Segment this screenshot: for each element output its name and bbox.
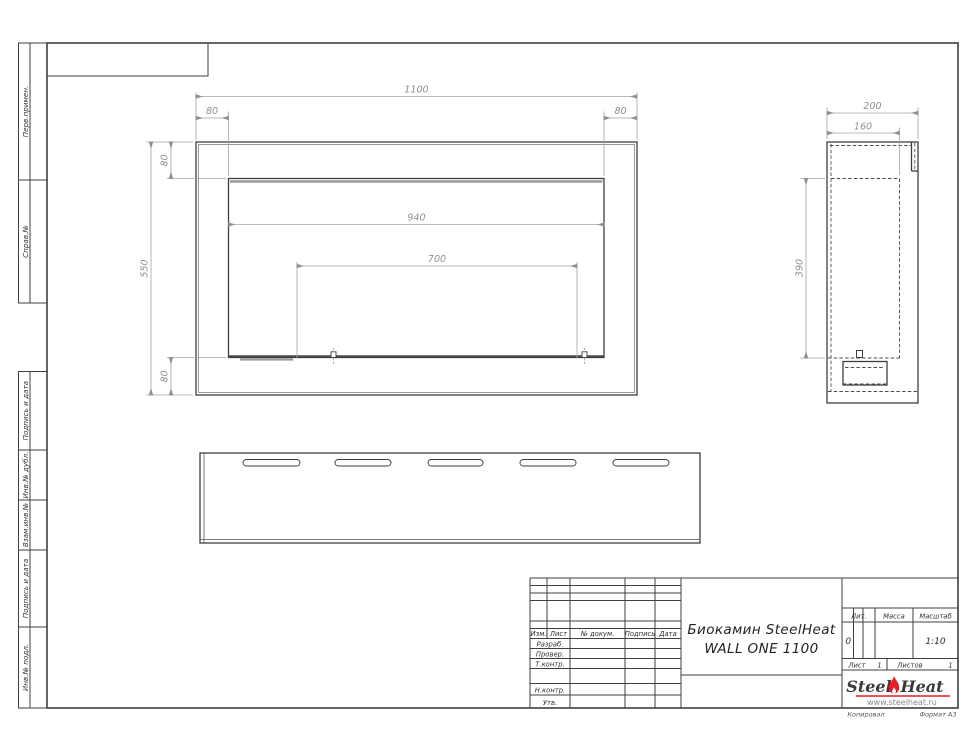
col-izm: Изм. (531, 630, 547, 638)
scale-value: 1:10 (925, 637, 945, 647)
side-notch (857, 351, 863, 358)
svg-text:550: 550 (140, 259, 151, 277)
sheet-label: Лист (847, 662, 866, 670)
dim-front-height: 550 (140, 142, 194, 395)
logo-url: www.steelheat.ru (867, 698, 937, 707)
dim-side-inner-height: 390 (795, 179, 826, 359)
sheets-value: 1 (948, 662, 952, 670)
sheets-label: Листов (896, 662, 922, 670)
dim-front-offset-bottom: 80 (160, 358, 227, 396)
svg-text:700: 700 (428, 254, 446, 265)
row-utv: Утв. (543, 699, 557, 707)
frame-border (47, 43, 958, 708)
left-margin-column: Перв.примен. Справ.№ Подпись и дата Инв.… (19, 43, 48, 708)
side-outer-body (827, 142, 918, 403)
top-left-stamp-box (47, 43, 208, 76)
front-opening (229, 179, 605, 358)
margin-label-perv-primen: Перв.примен. (21, 86, 30, 138)
footer-copied: Копировал (847, 711, 884, 719)
footer-format: Формат А3 (919, 711, 956, 719)
dim-front-mount-spacing: 700 (297, 254, 577, 358)
svg-text:200: 200 (863, 101, 881, 112)
dim-front-offset-top: 80 (147, 142, 227, 179)
dim-side-inner-depth: 160 (827, 122, 900, 176)
svg-text:160: 160 (854, 122, 872, 133)
svg-text:390: 390 (795, 259, 806, 277)
mount-tab-right (582, 348, 587, 364)
row-nkontr: Н.контр. (535, 687, 565, 695)
svg-text:940: 940 (407, 213, 425, 224)
svg-text:80: 80 (206, 106, 218, 117)
side-view: 200 160 390 (795, 101, 919, 403)
sheet-frame (47, 43, 958, 708)
row-tkontr: Т.контр. (535, 660, 564, 668)
mount-tab-left (331, 348, 336, 364)
row-prover: Провер. (536, 650, 564, 658)
side-bracket (912, 142, 919, 171)
margin-label-podpis-data-1: Подпись и дата (21, 381, 30, 441)
title-block: Изм. Лист № докум. Подпись Дата Разраб. … (530, 578, 958, 708)
top-view (200, 453, 700, 543)
svg-text:80: 80 (160, 370, 171, 382)
product-name-line1: Биокамин SteelHeat (687, 622, 836, 638)
drawing-sheet: Перв.примен. Справ.№ Подпись и дата Инв.… (0, 0, 970, 750)
svg-text:1100: 1100 (404, 85, 428, 96)
steelheat-logo: Steel Heat www.steelheat.ru (846, 676, 950, 707)
mass-label: Масса (883, 613, 905, 621)
product-name-line2: WALL ONE 1100 (704, 641, 818, 657)
vent-slot (335, 460, 391, 467)
col-list: Лист (549, 630, 568, 638)
lit-value: 0 (845, 637, 851, 647)
front-view: 1100 80 80 80 550 (140, 85, 638, 396)
lit-label: Лит. (850, 613, 867, 621)
svg-text:80: 80 (160, 154, 171, 166)
row-razrab: Разраб. (537, 640, 564, 648)
vent-slot (428, 460, 483, 467)
scale-label: Масштаб (919, 613, 951, 621)
dim-front-opening-width: 940 (229, 213, 605, 225)
dim-front-offset-left: 80 (196, 106, 229, 176)
sheet-value: 1 (877, 662, 881, 670)
vent-slot (613, 460, 669, 467)
vent-slot (243, 460, 300, 467)
sheet-footer: Копировал Формат А3 (847, 711, 956, 719)
top-view-body (200, 453, 700, 543)
margin-label-sprav-no: Справ.№ (21, 225, 30, 258)
margin-label-inv-podl: Инв.№ подл. (21, 644, 30, 691)
margin-label-vzam-inv: Взам.инв.№ (21, 503, 30, 547)
margin-label-podpis-data-2: Подпись и дата (21, 559, 30, 619)
vent-slot (520, 460, 576, 467)
col-dokum: № докум. (580, 630, 615, 638)
col-data: Дата (658, 630, 677, 638)
logo-heat-text: Heat (899, 677, 944, 696)
margin-label-inv-dubl: Инв.№ дубл. (21, 452, 30, 499)
dim-front-offset-right: 80 (604, 106, 637, 176)
gost-drawing: Перв.примен. Справ.№ Подпись и дата Инв.… (0, 0, 970, 750)
svg-text:80: 80 (614, 106, 626, 117)
side-fuel-tank (843, 362, 887, 386)
col-podpis: Подпись (625, 630, 656, 638)
dim-front-width: 1100 (196, 85, 637, 141)
logo-steel-text: Steel (846, 677, 891, 696)
